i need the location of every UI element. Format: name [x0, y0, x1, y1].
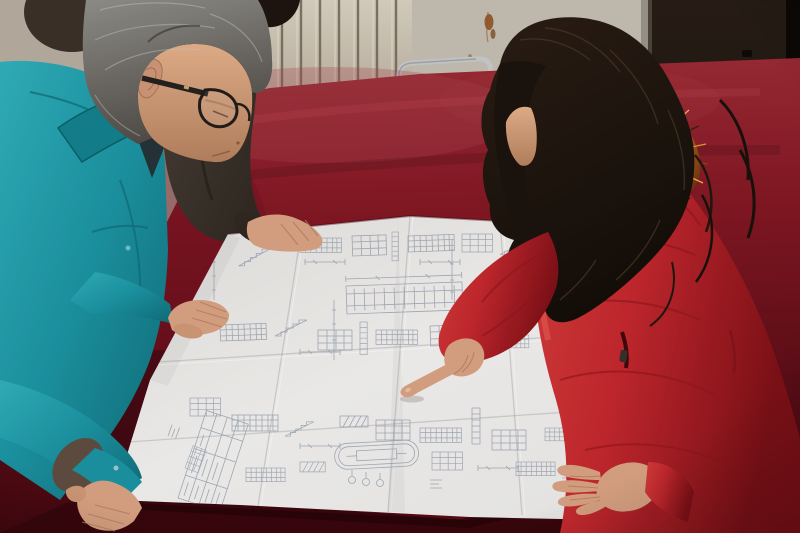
warm-cast-overlay: [0, 0, 800, 533]
photo-blueprint-review: [0, 0, 800, 533]
photo-canvas: [0, 0, 800, 533]
